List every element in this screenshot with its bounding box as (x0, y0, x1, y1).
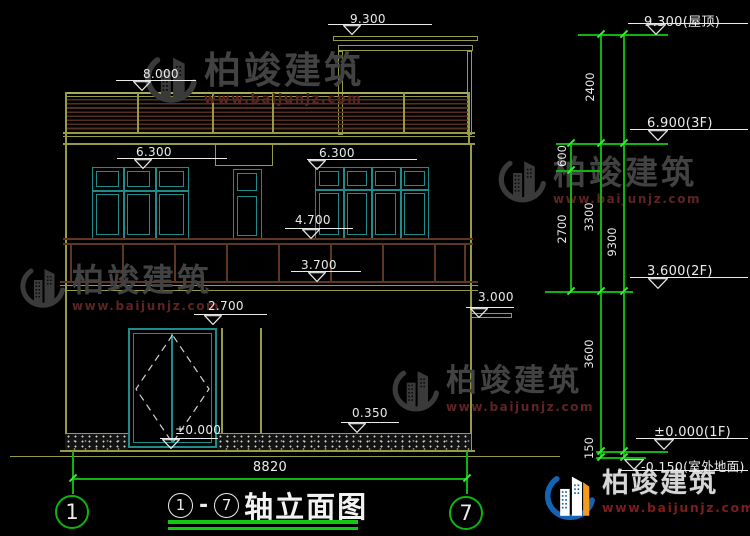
marker-1f-line (636, 438, 748, 439)
axis-bubble-7: 7 (449, 496, 483, 530)
balcony-post (278, 245, 280, 281)
window-pane (127, 194, 150, 235)
marker-4700-triangle (302, 229, 320, 239)
roof-canopy-slab-top (333, 36, 478, 41)
marker-9300-triangle (343, 25, 361, 35)
title-circled-1: 1 (168, 493, 193, 518)
title-circled-7: 7 (214, 493, 239, 518)
window-pane (127, 171, 150, 187)
window-pane (159, 171, 184, 187)
watermark-name: 柏竣建筑 (446, 366, 594, 398)
marker-3700-text: 3.700 (301, 258, 337, 272)
marker-6300l-triangle (134, 159, 152, 169)
watermark-url: www.baijunjz.com (72, 299, 220, 313)
watermark-name: 柏竣建筑 (553, 156, 701, 190)
marker-3000-text: 3.000 (478, 290, 514, 304)
axis-line-1 (72, 451, 74, 494)
marker-4700-text: 4.700 (295, 213, 331, 227)
cad-elevation-canvas: 柏竣建筑 www.baijunjz.com 柏竣建筑 www.baijunjz.… (0, 0, 750, 536)
marker-3000-triangle (470, 308, 488, 318)
dim-text-9300: 9300 (605, 220, 619, 264)
window-2f-left-mullion (155, 167, 157, 240)
watermark-right: 柏竣建筑 www.baijunjz.com (494, 156, 701, 209)
porch-edge-line (221, 328, 223, 433)
dim-chain-line-outer (623, 34, 625, 457)
axis-bubble-1: 1 (55, 495, 89, 529)
title-underline-thick (168, 520, 358, 524)
window-pane (96, 171, 119, 187)
plinth-hatch-right (217, 433, 471, 450)
dim-chain-line-middle (600, 34, 602, 457)
roof-railing-post (137, 92, 139, 133)
marker-6300r-triangle (308, 160, 326, 170)
marker-0000-triangle (162, 439, 180, 449)
marker-0350-triangle (348, 423, 366, 433)
watermark-url: www.baijunjz.com (446, 400, 594, 414)
axis-dim-line (72, 478, 466, 480)
brand-logo-icon (540, 470, 596, 528)
watermark-url: www.baijunjz.com (553, 192, 701, 206)
parapet-band-line (63, 136, 475, 137)
dim-text-3300: 3300 (582, 195, 596, 239)
door-2f-pane (237, 173, 257, 191)
watermark-logo-icon (494, 156, 547, 209)
dim-text-2400: 2400 (583, 65, 597, 109)
title-dash: - (199, 493, 208, 518)
axis-number-7: 7 (459, 501, 472, 525)
marker-ground-text: -0.150(室外地面) (641, 456, 745, 475)
marker-3f-triangle (648, 130, 668, 141)
window-2f-right-mullion (371, 167, 373, 240)
window-pane (96, 194, 119, 235)
marker-roof-triangle (646, 24, 666, 35)
window-pane (375, 171, 396, 186)
dim-text-600: 600 (555, 134, 569, 178)
brand-url: www.baijunjz.com (602, 500, 750, 515)
marker-8000-triangle (133, 81, 151, 91)
window-pane (404, 193, 425, 235)
beam-box-2f (215, 143, 273, 166)
marker-2f-triangle (648, 278, 668, 289)
watermark-left: 柏竣建筑 www.baijunjz.com (16, 264, 220, 314)
balcony-post (382, 245, 384, 281)
window-2f-right-mullion (400, 167, 402, 240)
balcony-post (226, 245, 228, 281)
brand-logo: 柏竣建筑 www.baijunjz.com (540, 470, 750, 528)
marker-0350-text: 0.350 (352, 406, 388, 420)
window-pane (159, 194, 184, 235)
marker-6300r-text: 6.300 (319, 146, 355, 160)
dim-chain-line-inner (570, 143, 572, 291)
marker-ground-triangle (624, 459, 644, 470)
plinth-hatch-left (65, 433, 128, 450)
marker-2700-text: 2.700 (208, 299, 244, 313)
watermark-logo-icon (16, 264, 66, 314)
marker-8000-line (116, 80, 196, 81)
dim-text-3600: 3600 (582, 332, 596, 376)
watermark-bottom: 柏竣建筑 www.baijunjz.com (388, 366, 594, 418)
window-pane (319, 171, 339, 186)
watermark-name: 柏竣建筑 (204, 52, 364, 90)
marker-ground-line (618, 470, 748, 471)
watermark-name: 柏竣建筑 (72, 264, 220, 297)
outdoor-ground-line (10, 456, 560, 458)
marker-3700-triangle (308, 272, 326, 282)
door-2f-pane (237, 196, 257, 236)
watermark-url: www.baijunjz.com (204, 92, 364, 107)
marker-0000-text: ±0.000 (175, 423, 221, 437)
window-pane (404, 171, 425, 186)
marker-2700-triangle (204, 315, 222, 325)
balcony-rail-bottom (63, 243, 473, 245)
axis-dim-8820: 8820 (240, 460, 300, 475)
watermark-logo-icon (388, 366, 440, 418)
balcony-post (434, 245, 436, 281)
balcony-post (464, 245, 466, 281)
balcony-rail-top (63, 238, 473, 240)
axis-line-7 (466, 451, 468, 494)
parapet-band-line (63, 132, 475, 134)
roof-railing-post (403, 92, 405, 133)
window-2f-left-mullion (123, 167, 125, 240)
marker-1f-triangle (654, 439, 674, 450)
marker-8000-text: 8.000 (143, 67, 179, 81)
axis-number-1: 1 (65, 500, 78, 524)
window-2f-left-transom (92, 190, 189, 192)
dim-text-2700: 2700 (555, 207, 569, 251)
dim-text-150: 150 (582, 426, 596, 470)
window-pane (347, 171, 367, 186)
dim-level-line-0000 (596, 451, 668, 453)
dim-level-line-6900 (556, 143, 668, 145)
title-underline-thin (168, 527, 358, 530)
building-base-line (60, 450, 475, 452)
window-pane (375, 193, 396, 235)
wall-pier-line (260, 328, 262, 433)
marker-6300l-text: 6.300 (136, 145, 172, 159)
marker-3700-line (291, 271, 361, 272)
